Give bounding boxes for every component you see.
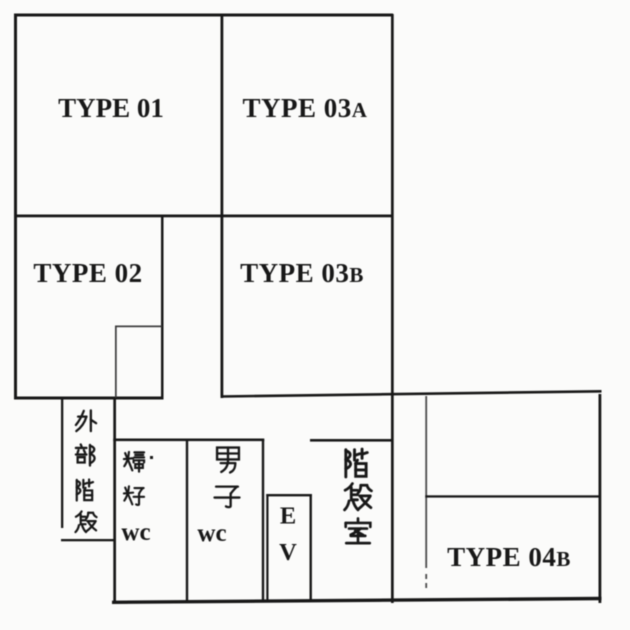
svg-text:TYPE 02: TYPE 02: [33, 258, 142, 288]
svg-text:TYPE 03B: TYPE 03B: [240, 258, 364, 288]
svg-text:wc: wc: [197, 520, 226, 547]
svg-text:TYPE 04B: TYPE 04B: [447, 542, 571, 572]
svg-text:V: V: [279, 539, 297, 566]
svg-text:TYPE 03A: TYPE 03A: [243, 93, 368, 123]
svg-text:wc: wc: [121, 519, 150, 546]
svg-text:TYPE 01: TYPE 01: [58, 93, 164, 123]
svg-text:E: E: [280, 503, 296, 530]
